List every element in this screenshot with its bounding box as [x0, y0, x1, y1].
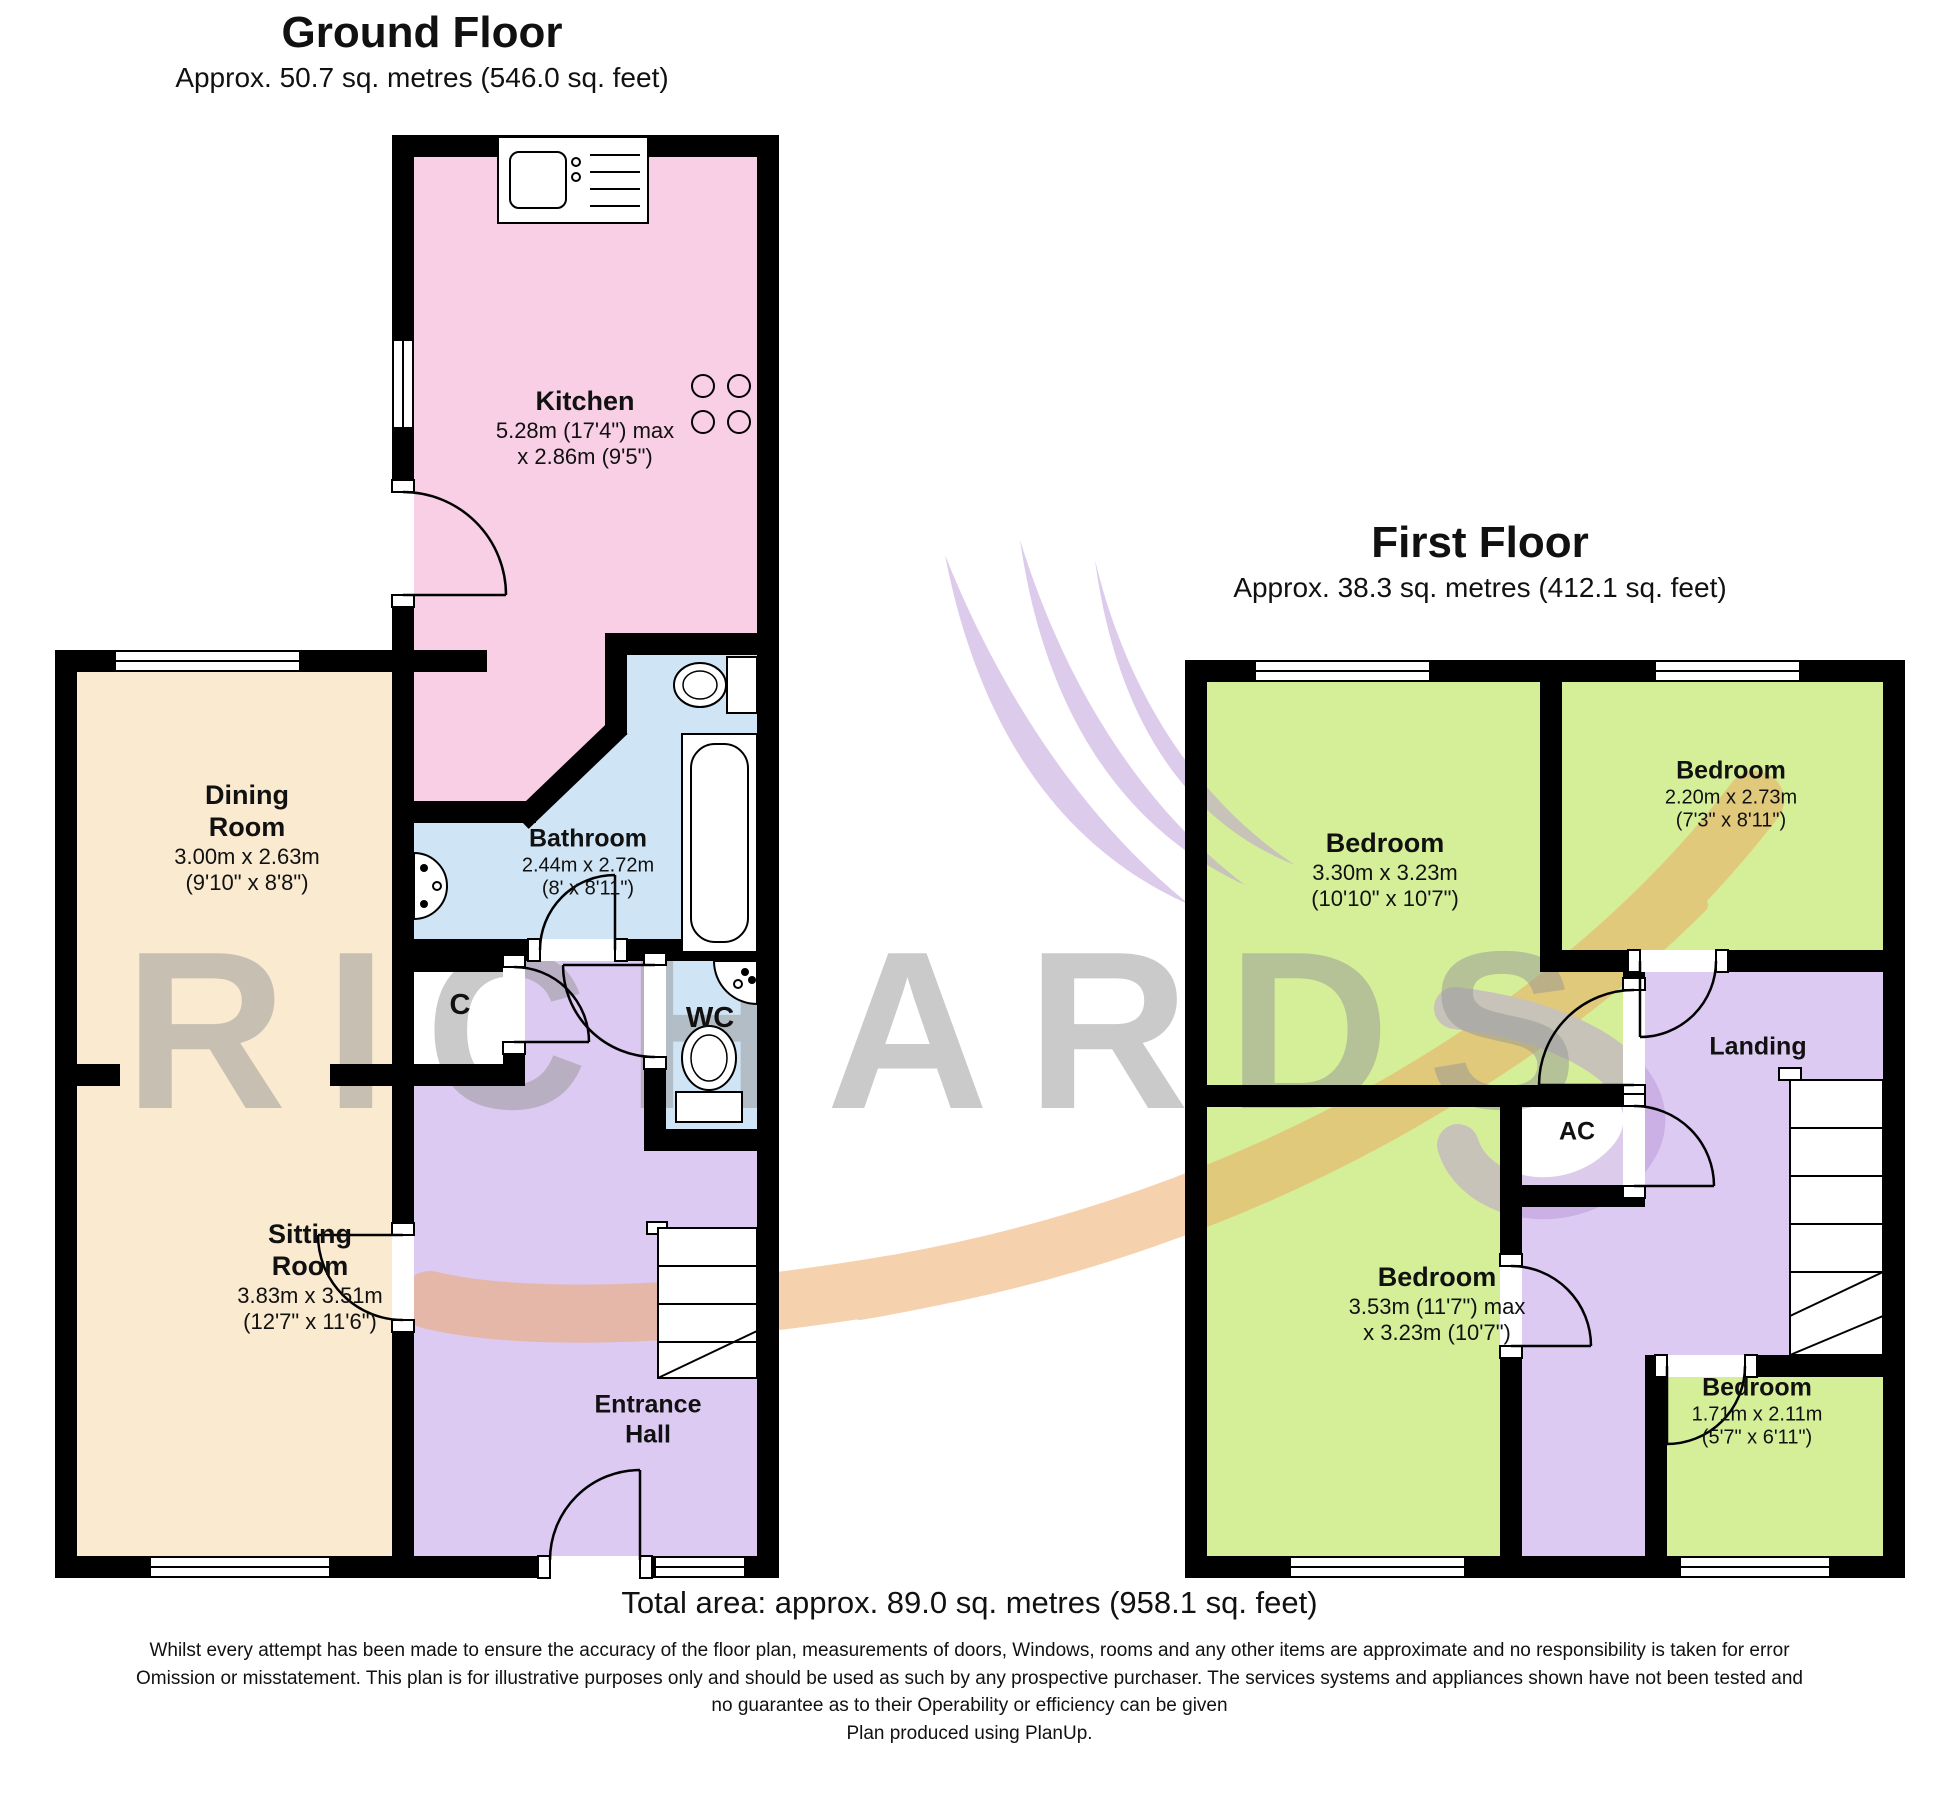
bathroom-label: Bathroom 2.44m x 2.72m (8' x 8'11")	[522, 825, 654, 902]
floorplan-drawing: RICHARDS	[0, 0, 1939, 1800]
footer: Total area: approx. 89.0 sq. metres (958…	[0, 1585, 1939, 1747]
window	[655, 1556, 745, 1578]
dining-room-label: Dining Room 3.00m x 2.63m (9'10" x 8'8")	[174, 780, 320, 896]
ground-floor-title-block: Ground Floor Approx. 50.7 sq. metres (54…	[122, 10, 722, 94]
produced-by-text: Plan produced using PlanUp.	[0, 1720, 1939, 1748]
bedroom-bottom-left-label: Bedroom 3.53m (11'7") max x 3.23m (10'7"…	[1349, 1262, 1526, 1346]
first-floor-title: First Floor	[1180, 520, 1780, 566]
airing-cupboard-label: AC	[1559, 1117, 1595, 1147]
cupboard-label: C	[450, 988, 471, 1022]
window	[1290, 1556, 1465, 1578]
bathtub-icon	[682, 734, 757, 952]
disclaimer-text: Whilst every attempt has been made to en…	[130, 1637, 1810, 1720]
staircase	[1790, 1080, 1883, 1355]
window	[115, 650, 300, 672]
bedroom-top-left-label: Bedroom 3.30m x 3.23m (10'10" x 10'7")	[1311, 828, 1459, 912]
landing-label: Landing	[1709, 1032, 1806, 1062]
window	[1255, 660, 1430, 682]
sitting-room-label: Sitting Room 3.83m x 3.51m (12'7" x 11'6…	[237, 1219, 383, 1335]
kitchen-sink-icon	[498, 137, 648, 223]
staircase	[658, 1228, 757, 1378]
bedroom-top-right-label: Bedroom 2.20m x 2.73m (7'3" x 8'11")	[1665, 757, 1797, 834]
wc-label: WC	[686, 1001, 734, 1035]
kitchen-label: Kitchen 5.28m (17'4") max x 2.86m (9'5")	[496, 386, 674, 470]
first-floor-area: Approx. 38.3 sq. metres (412.1 sq. feet)	[1180, 572, 1780, 604]
window	[1680, 1556, 1830, 1578]
ground-floor-area: Approx. 50.7 sq. metres (546.0 sq. feet)	[122, 62, 722, 94]
toilet-icon	[676, 1026, 742, 1122]
window	[1655, 660, 1800, 682]
bedroom-bottom-right-label: Bedroom 1.71m x 2.11m (5'7" x 6'11")	[1692, 1374, 1823, 1451]
ground-floor-title: Ground Floor	[122, 10, 722, 56]
watermark-text: RICHARDS	[124, 904, 1616, 1156]
first-floor-title-block: First Floor Approx. 38.3 sq. metres (412…	[1180, 520, 1780, 604]
entrance-hall-label: Entrance Hall	[595, 1391, 702, 1450]
room-fills	[66, 146, 1894, 1567]
window	[392, 340, 414, 428]
window	[150, 1556, 330, 1578]
total-area-text: Total area: approx. 89.0 sq. metres (958…	[0, 1585, 1939, 1621]
floorplan-page: RICHARDS	[0, 0, 1939, 1800]
